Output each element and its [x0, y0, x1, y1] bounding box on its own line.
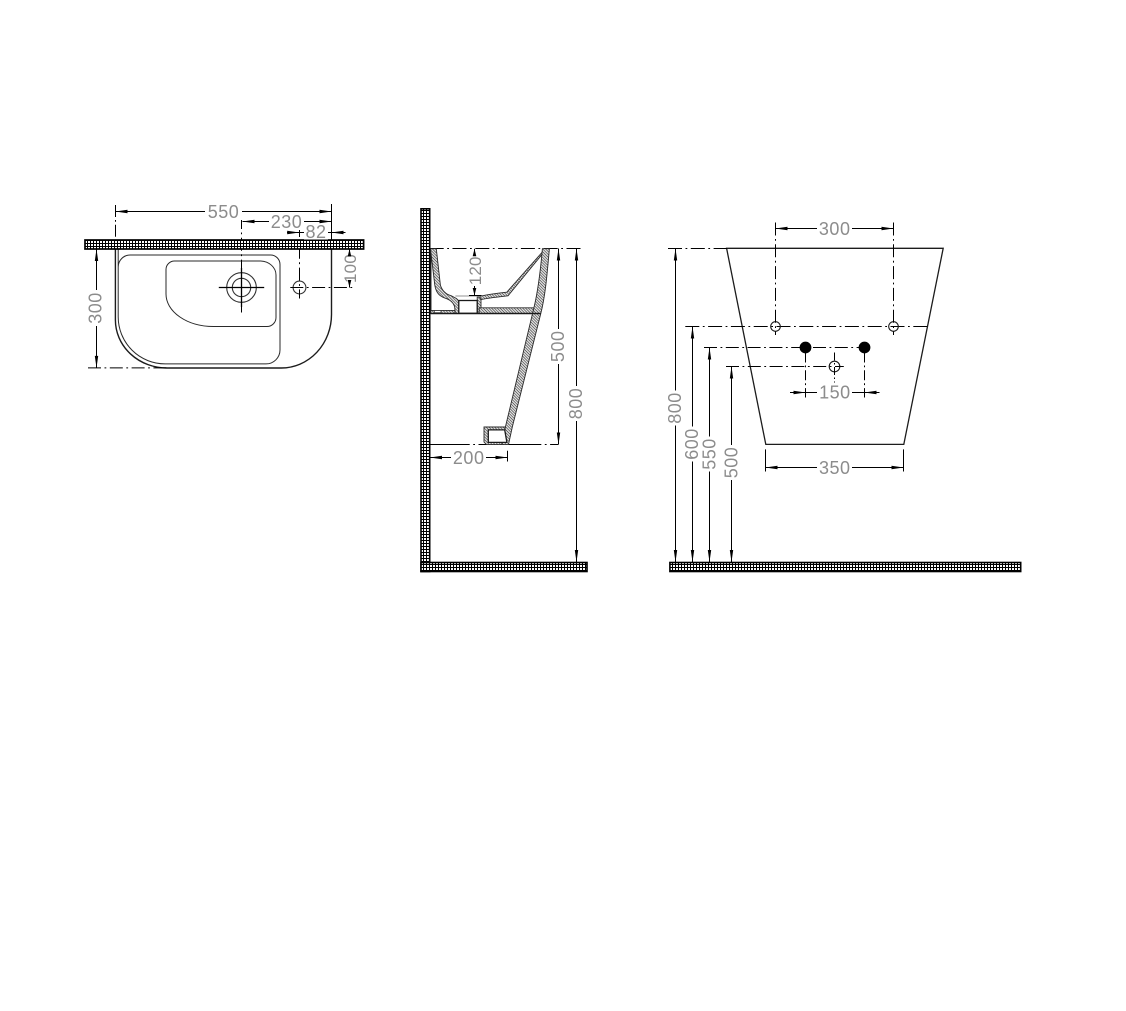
svg-text:800: 800	[665, 392, 685, 424]
svg-text:350: 350	[819, 458, 851, 478]
svg-text:550: 550	[208, 202, 240, 222]
svg-text:300: 300	[86, 292, 106, 324]
svg-text:82: 82	[305, 222, 326, 242]
svg-text:550: 550	[700, 438, 720, 470]
svg-text:120: 120	[466, 256, 485, 285]
svg-text:300: 300	[819, 219, 851, 239]
svg-text:230: 230	[271, 212, 303, 232]
svg-text:100: 100	[341, 254, 360, 283]
svg-text:500: 500	[548, 331, 568, 363]
svg-text:800: 800	[566, 388, 586, 420]
svg-text:500: 500	[722, 447, 742, 479]
svg-text:200: 200	[453, 448, 485, 468]
svg-text:150: 150	[819, 382, 851, 402]
